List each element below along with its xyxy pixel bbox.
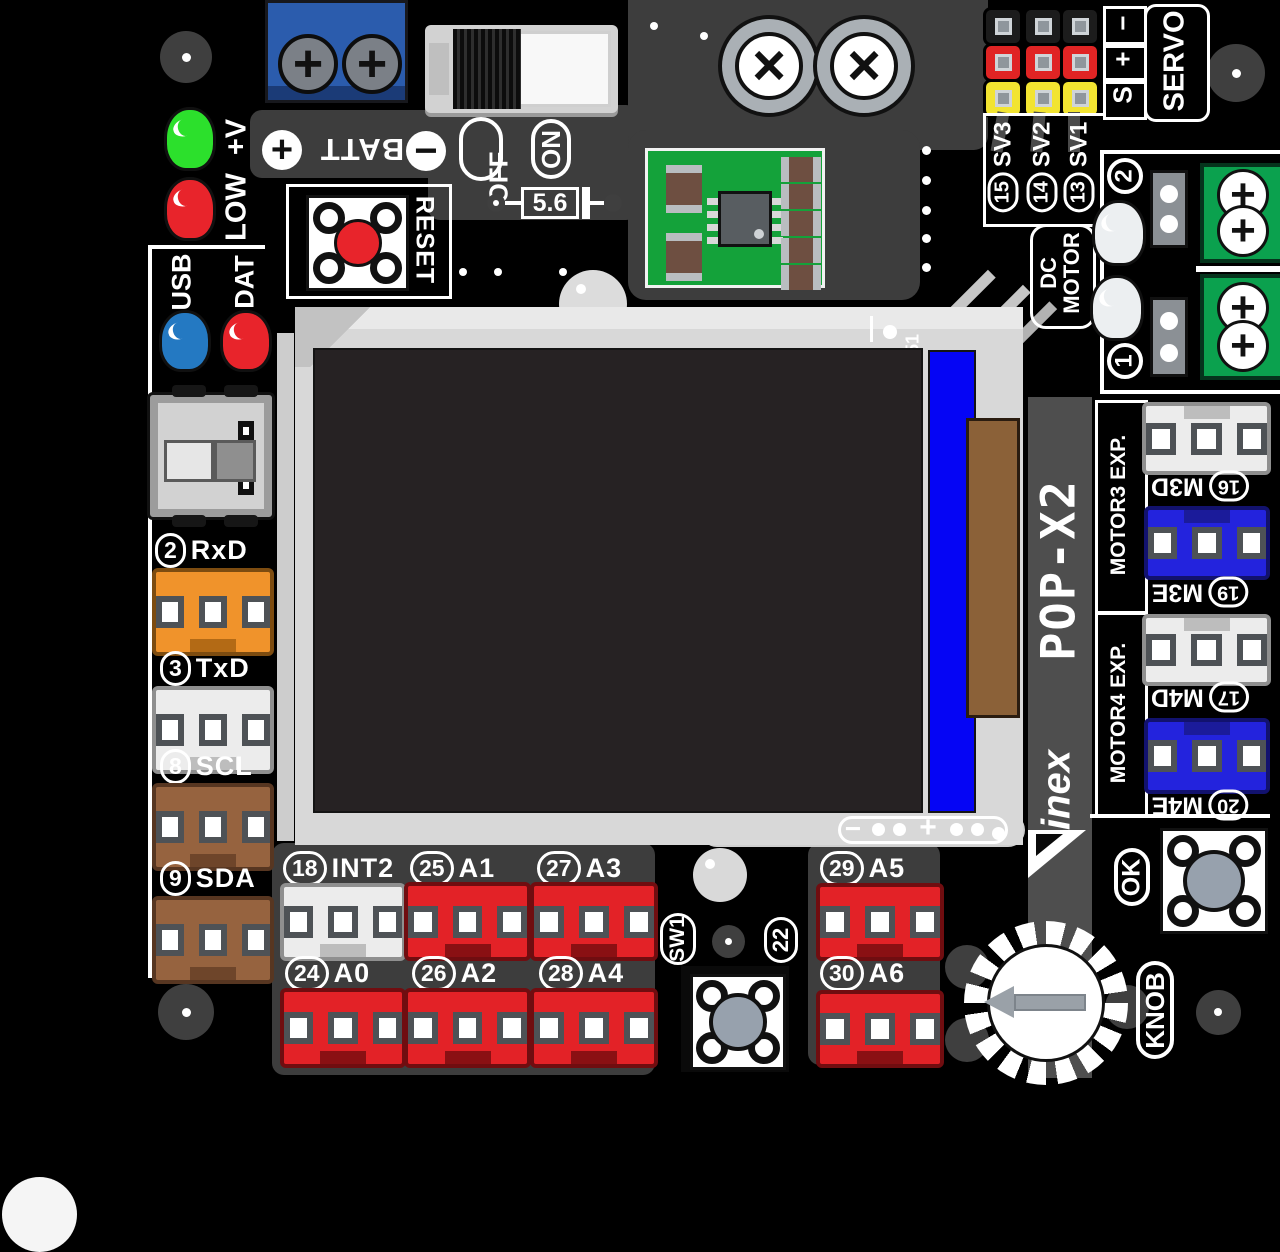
a2-pin-number: 26 (412, 956, 456, 991)
sv3-label: 15 SV3 (988, 122, 1019, 213)
m3d-label: 16 M3D (1151, 471, 1249, 502)
pcb-trace (277, 333, 294, 841)
sw1-label-frame: SW1 (660, 913, 696, 965)
a4-name: A4 (588, 958, 625, 989)
pin-hole (242, 596, 270, 628)
motor1-terminal: + + (1200, 274, 1280, 380)
mounting-hole-dot (725, 938, 732, 945)
usb-pin (238, 421, 254, 441)
servo-frame: SERVO (1144, 4, 1210, 122)
a6-port (816, 990, 944, 1068)
sw1-pin-number: 22 (768, 928, 794, 952)
chip-leg (707, 237, 718, 244)
dat-led (220, 310, 272, 372)
sda-pin-number: 9 (160, 861, 191, 896)
sw1-pin-frame: 22 (764, 917, 798, 963)
a1-pin-number: 25 (410, 851, 454, 886)
pin-hole (497, 906, 527, 938)
spacer-dot (705, 859, 715, 869)
a0-label: 24 A0 (285, 956, 370, 991)
m4d-label: 17 M4D (1151, 682, 1249, 713)
silk-dot (922, 263, 931, 272)
pin-hole (1237, 634, 1267, 666)
pin-hole (820, 1013, 850, 1045)
motor3-exp-label: MOTOR3 EXP. (1107, 435, 1131, 575)
pin-hole (1148, 740, 1177, 772)
servo-pin-plus (983, 43, 1023, 82)
silk-dot (922, 234, 931, 243)
m3d-port (1142, 402, 1271, 475)
sv1-pin-number: 13 (1064, 172, 1095, 212)
connector-notch (857, 1051, 903, 1064)
chip-leg (707, 211, 718, 218)
low-label: LOW (221, 173, 254, 241)
chip-leg (707, 198, 718, 205)
sw1-button[interactable] (690, 974, 786, 1070)
diode-value: 5.6 (533, 189, 568, 218)
int2-name: INT2 (332, 853, 395, 884)
silk-dot (922, 146, 931, 155)
a3-label: 27 A3 (537, 851, 622, 886)
dc-motor-label: DC MOTOR (1037, 232, 1083, 313)
mounting-hole-dot (182, 1008, 191, 1017)
a2-port (404, 988, 531, 1068)
m3e-port (1144, 506, 1270, 580)
txd-label: 3 TxD (160, 651, 250, 686)
ok-label-frame: OK (1114, 848, 1150, 906)
usb-led (159, 310, 211, 372)
lcd-pad-dot (971, 823, 984, 836)
smd-component (781, 238, 821, 263)
motor3-exp-frame: MOTOR3 EXP. (1095, 400, 1148, 614)
servo-plus-label: + (1108, 51, 1139, 66)
pin-hole (408, 906, 438, 938)
rxd-name: RxD (191, 535, 248, 566)
pin-hole (242, 924, 270, 956)
pcb-board: + + + BATT − OFF ON 5.6 RESET +V LOW (0, 0, 1280, 1252)
pin-hole (624, 1012, 654, 1044)
led-highlight (1097, 284, 1126, 309)
connector-hole (1160, 344, 1178, 362)
usb-label: USB (167, 253, 198, 310)
ok-label: OK (1118, 858, 1147, 896)
silk-dot (650, 22, 658, 30)
pin-hole (373, 906, 402, 938)
m3e-pin-number: 19 (1208, 577, 1248, 608)
diode-body: 5.6 (521, 187, 579, 219)
pin-hole (1237, 740, 1266, 772)
a5-port (816, 883, 944, 961)
servo-pin-minus (1060, 7, 1100, 46)
rxd-pin-number: 2 (155, 533, 186, 568)
lcd-bump-dot (576, 284, 586, 294)
smd-component (781, 265, 821, 290)
lcd-flex-connector (966, 418, 1020, 718)
pin-hole (497, 1012, 527, 1044)
pin-hole (1192, 527, 1221, 559)
batt-plus-icon: + (262, 130, 302, 170)
led-highlight (170, 186, 198, 210)
sv2-name: SV2 (1028, 122, 1056, 167)
pin-hole (199, 924, 227, 956)
sda-name: SDA (196, 863, 256, 894)
connector-hole (1160, 312, 1178, 330)
batt-minus-icon: − (406, 131, 446, 171)
lcd-pad-dot (872, 823, 885, 836)
mounting-hole-dot (1232, 69, 1241, 78)
a3-name: A3 (586, 853, 623, 884)
pin-hole (1191, 423, 1221, 455)
servo-label: SERVO (1159, 10, 1192, 111)
screw-icon: + (1217, 320, 1269, 372)
pin-hole (579, 1012, 609, 1044)
pin-hole (328, 906, 357, 938)
pin-hole (1148, 527, 1177, 559)
diode-pad (604, 194, 622, 212)
pin-hole (865, 906, 895, 938)
motor2-led (1092, 200, 1146, 266)
a1-name: A1 (459, 853, 496, 884)
power-switch-slider[interactable] (515, 31, 611, 107)
a3-pin-number: 27 (537, 851, 581, 886)
pin-hole (156, 596, 184, 628)
pin-hole (1146, 634, 1176, 666)
a2-label: 26 A2 (412, 956, 497, 991)
pin-hole (1237, 423, 1267, 455)
diode-band (582, 187, 590, 219)
silk-dot (922, 206, 931, 215)
a0-name: A0 (334, 958, 371, 989)
lcd-tick (870, 316, 873, 342)
a1-port (404, 882, 531, 961)
connector-notch (445, 1051, 491, 1064)
pin-hole (910, 906, 940, 938)
ok-button-cap[interactable] (1183, 850, 1245, 912)
pin-hole (199, 596, 227, 628)
a6-label: 30 A6 (820, 956, 905, 991)
pin-hole (453, 1012, 483, 1044)
pin-hole (865, 1013, 895, 1045)
rxd-label: 2 RxD (155, 533, 248, 568)
motor1-number: 1 (1111, 354, 1139, 367)
sv1-name: SV1 (1065, 122, 1093, 167)
pin-hole (242, 811, 270, 843)
power-switch-grip[interactable] (453, 29, 521, 109)
usb-connector-tab (172, 515, 206, 527)
a6-name: A6 (869, 958, 906, 989)
usb-socket (164, 440, 214, 482)
board-model-label: POP-X2 (1032, 479, 1087, 661)
smd-component (666, 165, 702, 213)
pin-hole (408, 1012, 438, 1044)
led-highlight (227, 319, 255, 342)
ok-button[interactable] (1160, 828, 1268, 934)
batt-label: BATT (320, 131, 404, 167)
m4e-port (1144, 718, 1270, 794)
motor1-badge: 1 (1107, 343, 1143, 379)
on-label-frame: ON (531, 119, 571, 179)
ic-chip (718, 191, 772, 247)
m4d-name: M4D (1151, 683, 1204, 712)
screw-icon: + (278, 34, 338, 94)
pin-hole (156, 811, 184, 843)
motor1-led (1090, 275, 1144, 341)
motor2-badge: 2 (1107, 158, 1143, 194)
low-battery-led (164, 177, 216, 241)
sv3-name: SV3 (989, 122, 1017, 167)
m3e-label: 19 M3E (1152, 577, 1249, 608)
a2-name: A2 (461, 958, 498, 989)
scl-port (152, 783, 274, 871)
servo-pin-minus (983, 7, 1023, 46)
lcd-pad-dot (893, 823, 906, 836)
smd-component (781, 184, 821, 209)
section-line (1090, 814, 1270, 818)
pin-hole (624, 906, 654, 938)
reset-label: RESET (410, 196, 439, 284)
int2-pin-number: 18 (283, 851, 327, 886)
pin-hole (579, 906, 609, 938)
pin-hole (156, 714, 184, 746)
pin-hole (284, 1012, 313, 1044)
txd-pin-number: 3 (160, 651, 191, 686)
chip-leg (707, 224, 718, 231)
sv1-label: 13 SV1 (1064, 122, 1095, 213)
regulator-module (645, 148, 825, 288)
screw-icon: + (1217, 205, 1269, 257)
off-label-frame: OFF (459, 117, 503, 181)
smd-component (781, 211, 821, 236)
pin-hole (534, 906, 564, 938)
lcd-screen (313, 348, 923, 813)
servo-pin-plus (1023, 43, 1063, 82)
scl-name: SCL (196, 751, 253, 782)
m4d-port (1142, 614, 1271, 686)
scl-label: 8 SCL (160, 749, 253, 784)
sw1-button-cap[interactable] (709, 993, 767, 1051)
a4-port (530, 988, 658, 1068)
motor4-exp-frame: MOTOR4 EXP. (1095, 612, 1148, 818)
smd-component (781, 157, 821, 182)
mounting-hole-dot (182, 53, 191, 62)
pin-hole (242, 714, 270, 746)
mounting-hole-dot (1214, 1008, 1222, 1016)
led-highlight (166, 319, 194, 342)
connector-notch (1184, 406, 1230, 419)
sw1-label: SW1 (666, 916, 690, 962)
silk-dot (494, 268, 502, 276)
pin-hole (1192, 740, 1221, 772)
reset-button-cap[interactable] (334, 219, 382, 267)
motor2-connector (1150, 170, 1188, 248)
screw-icon: + (342, 34, 402, 94)
chip-dot (754, 229, 764, 239)
section-line (1100, 150, 1280, 154)
reset-button[interactable] (306, 195, 409, 291)
m3e-name: M3E (1152, 578, 1203, 607)
a0-pin-number: 24 (285, 956, 329, 991)
int2-label: 18 INT2 (283, 851, 394, 886)
power-led (164, 107, 216, 171)
diode-lead (590, 201, 604, 205)
on-label: ON (536, 130, 567, 169)
smd-component (666, 233, 702, 281)
a4-pin-number: 28 (539, 956, 583, 991)
power-switch-base (429, 43, 449, 95)
int2-port (280, 883, 406, 961)
knob-label: KNOB (1140, 972, 1171, 1049)
connector-notch (1184, 618, 1230, 631)
sda-label: 9 SDA (160, 861, 256, 896)
silk-dot (922, 176, 931, 185)
a6-pin-number: 30 (820, 956, 864, 991)
m3d-name: M3D (1151, 472, 1204, 501)
pin-hole (373, 1012, 402, 1044)
dc-motor-line2: MOTOR (1060, 232, 1083, 313)
lcd-pad (883, 325, 897, 339)
usb-connector-tab (172, 385, 206, 397)
usb-socket (214, 440, 256, 482)
power-switch[interactable] (425, 25, 618, 113)
pin-hole (199, 811, 227, 843)
knob-pointer-bar (1014, 994, 1086, 1011)
connector-notch (320, 1051, 366, 1064)
motor4-exp-label: MOTOR4 EXP. (1107, 643, 1131, 783)
vendor-logo-mark-inner (1036, 834, 1063, 856)
capacitor-top: × (830, 32, 898, 100)
diode-pad-dot (493, 200, 499, 206)
lcd-pad-dot (992, 827, 1005, 840)
corner-circle (2, 1177, 77, 1252)
diode-lead (505, 201, 521, 205)
led-highlight (170, 116, 198, 140)
motor2-number: 2 (1111, 169, 1139, 182)
servo-s-label: S (1108, 86, 1139, 103)
pin-hole (328, 1012, 357, 1044)
pin-hole (199, 714, 227, 746)
sv3-pin-number: 15 (988, 172, 1019, 212)
connector-notch (1184, 722, 1230, 735)
pin-hole (156, 924, 184, 956)
pin-hole (910, 1013, 940, 1045)
pin-hole (1191, 634, 1221, 666)
dat-label: DAT (230, 255, 261, 309)
connector-notch (190, 967, 236, 980)
pin-hole (1146, 423, 1176, 455)
spacer-circle (693, 848, 747, 902)
servo-minus-label: − (1108, 15, 1139, 30)
a1-label: 25 A1 (410, 851, 495, 886)
lcd-pad-dot (950, 823, 963, 836)
rxd-port (152, 568, 274, 656)
usb-connector-tab (224, 385, 258, 397)
silk-dot (700, 32, 708, 40)
a0-port (280, 988, 406, 1068)
connector-hole (1160, 185, 1178, 203)
sda-port (152, 896, 274, 984)
vplus-label: +V (221, 119, 254, 155)
scl-pin-number: 8 (160, 749, 191, 784)
lcd-frame-highlight (295, 307, 1023, 329)
servo-pin-plus (1060, 43, 1100, 82)
motor1-connector (1150, 297, 1188, 377)
section-line (1100, 150, 1104, 393)
a5-name: A5 (869, 853, 906, 884)
lcd-minus-mark: − (845, 813, 861, 845)
dc-motor-line1: DC (1037, 232, 1060, 313)
a4-label: 28 A4 (539, 956, 624, 991)
pin-hole (453, 906, 483, 938)
vendor-logo: inex (1035, 750, 1080, 830)
txd-name: TxD (196, 653, 250, 684)
terminal-divider (1196, 266, 1280, 272)
connector-notch (1184, 510, 1230, 523)
led-highlight (1099, 209, 1128, 234)
servo-pin-minus (1023, 7, 1063, 46)
usb-connector-tab (224, 515, 258, 527)
capacitor-top: × (735, 32, 803, 100)
sv2-pin-number: 14 (1027, 172, 1058, 212)
pin-hole (820, 906, 850, 938)
section-line (1100, 390, 1280, 394)
a5-label: 29 A5 (820, 851, 905, 886)
silk-dot (559, 268, 567, 276)
sv2-label: 14 SV2 (1027, 122, 1058, 213)
a5-pin-number: 29 (820, 851, 864, 886)
lcd-plus-mark: + (919, 811, 937, 845)
servo-s-frame: S (1103, 78, 1147, 120)
m4d-pin-number: 17 (1209, 682, 1249, 713)
motor2-terminal: + + (1200, 163, 1280, 263)
silk-dot (459, 268, 467, 276)
divider-line (150, 245, 265, 249)
pin-hole (534, 1012, 564, 1044)
connector-notch (571, 1051, 617, 1064)
knob-label-frame: KNOB (1136, 961, 1174, 1059)
a3-port (530, 882, 658, 961)
pin-hole (284, 906, 313, 938)
usb-connector (147, 392, 275, 520)
connector-hole (1160, 215, 1178, 233)
pin-hole (1237, 527, 1266, 559)
m3d-pin-number: 16 (1209, 471, 1249, 502)
knob-pointer-tip (984, 986, 1014, 1018)
